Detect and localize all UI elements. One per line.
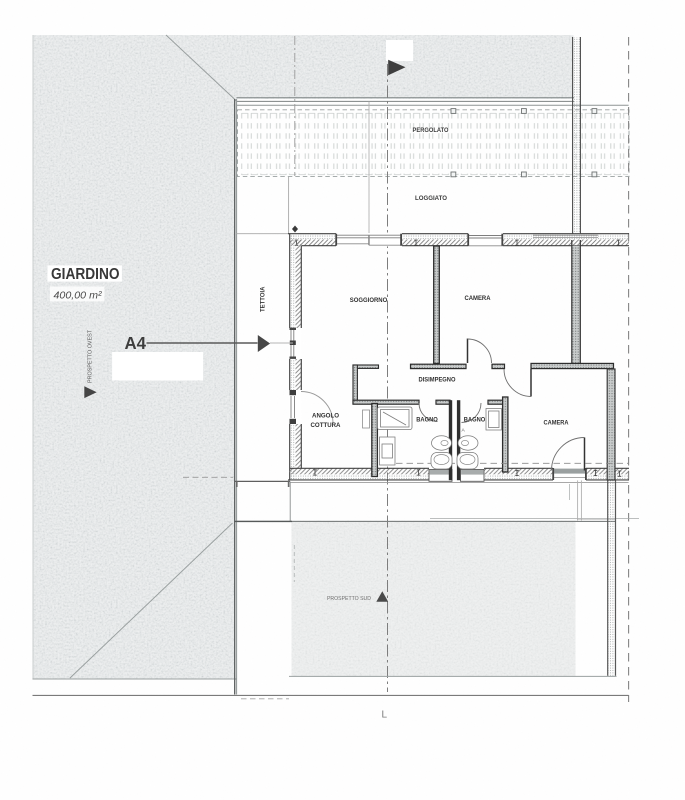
svg-text:BAGNO: BAGNO [464, 417, 486, 424]
svg-text:TETTOIA: TETTOIA [260, 286, 267, 312]
svg-text:CAMERA: CAMERA [544, 420, 569, 427]
svg-text:PROSPETTO OVEST: PROSPETTO OVEST [88, 329, 94, 383]
svg-text:PROSPETTO SUD: PROSPETTO SUD [327, 596, 371, 602]
svg-text:BAGNO: BAGNO [416, 417, 438, 424]
svg-text:PERGOLATO: PERGOLATO [413, 127, 449, 134]
svg-text:A4: A4 [125, 333, 147, 353]
svg-text:LOGGIATO: LOGGIATO [415, 195, 447, 202]
svg-text:L: L [382, 710, 388, 721]
svg-text:COTTURA: COTTURA [311, 422, 341, 429]
svg-text:ANGOLO: ANGOLO [312, 413, 339, 420]
svg-text:400,00 m²: 400,00 m² [54, 289, 103, 301]
svg-text:CAMERA: CAMERA [465, 295, 491, 302]
svg-text:DISIMPEGNO: DISIMPEGNO [419, 377, 456, 384]
svg-text:GIARDINO: GIARDINO [51, 266, 120, 283]
svg-text:SOGGIORNO: SOGGIORNO [350, 297, 388, 304]
